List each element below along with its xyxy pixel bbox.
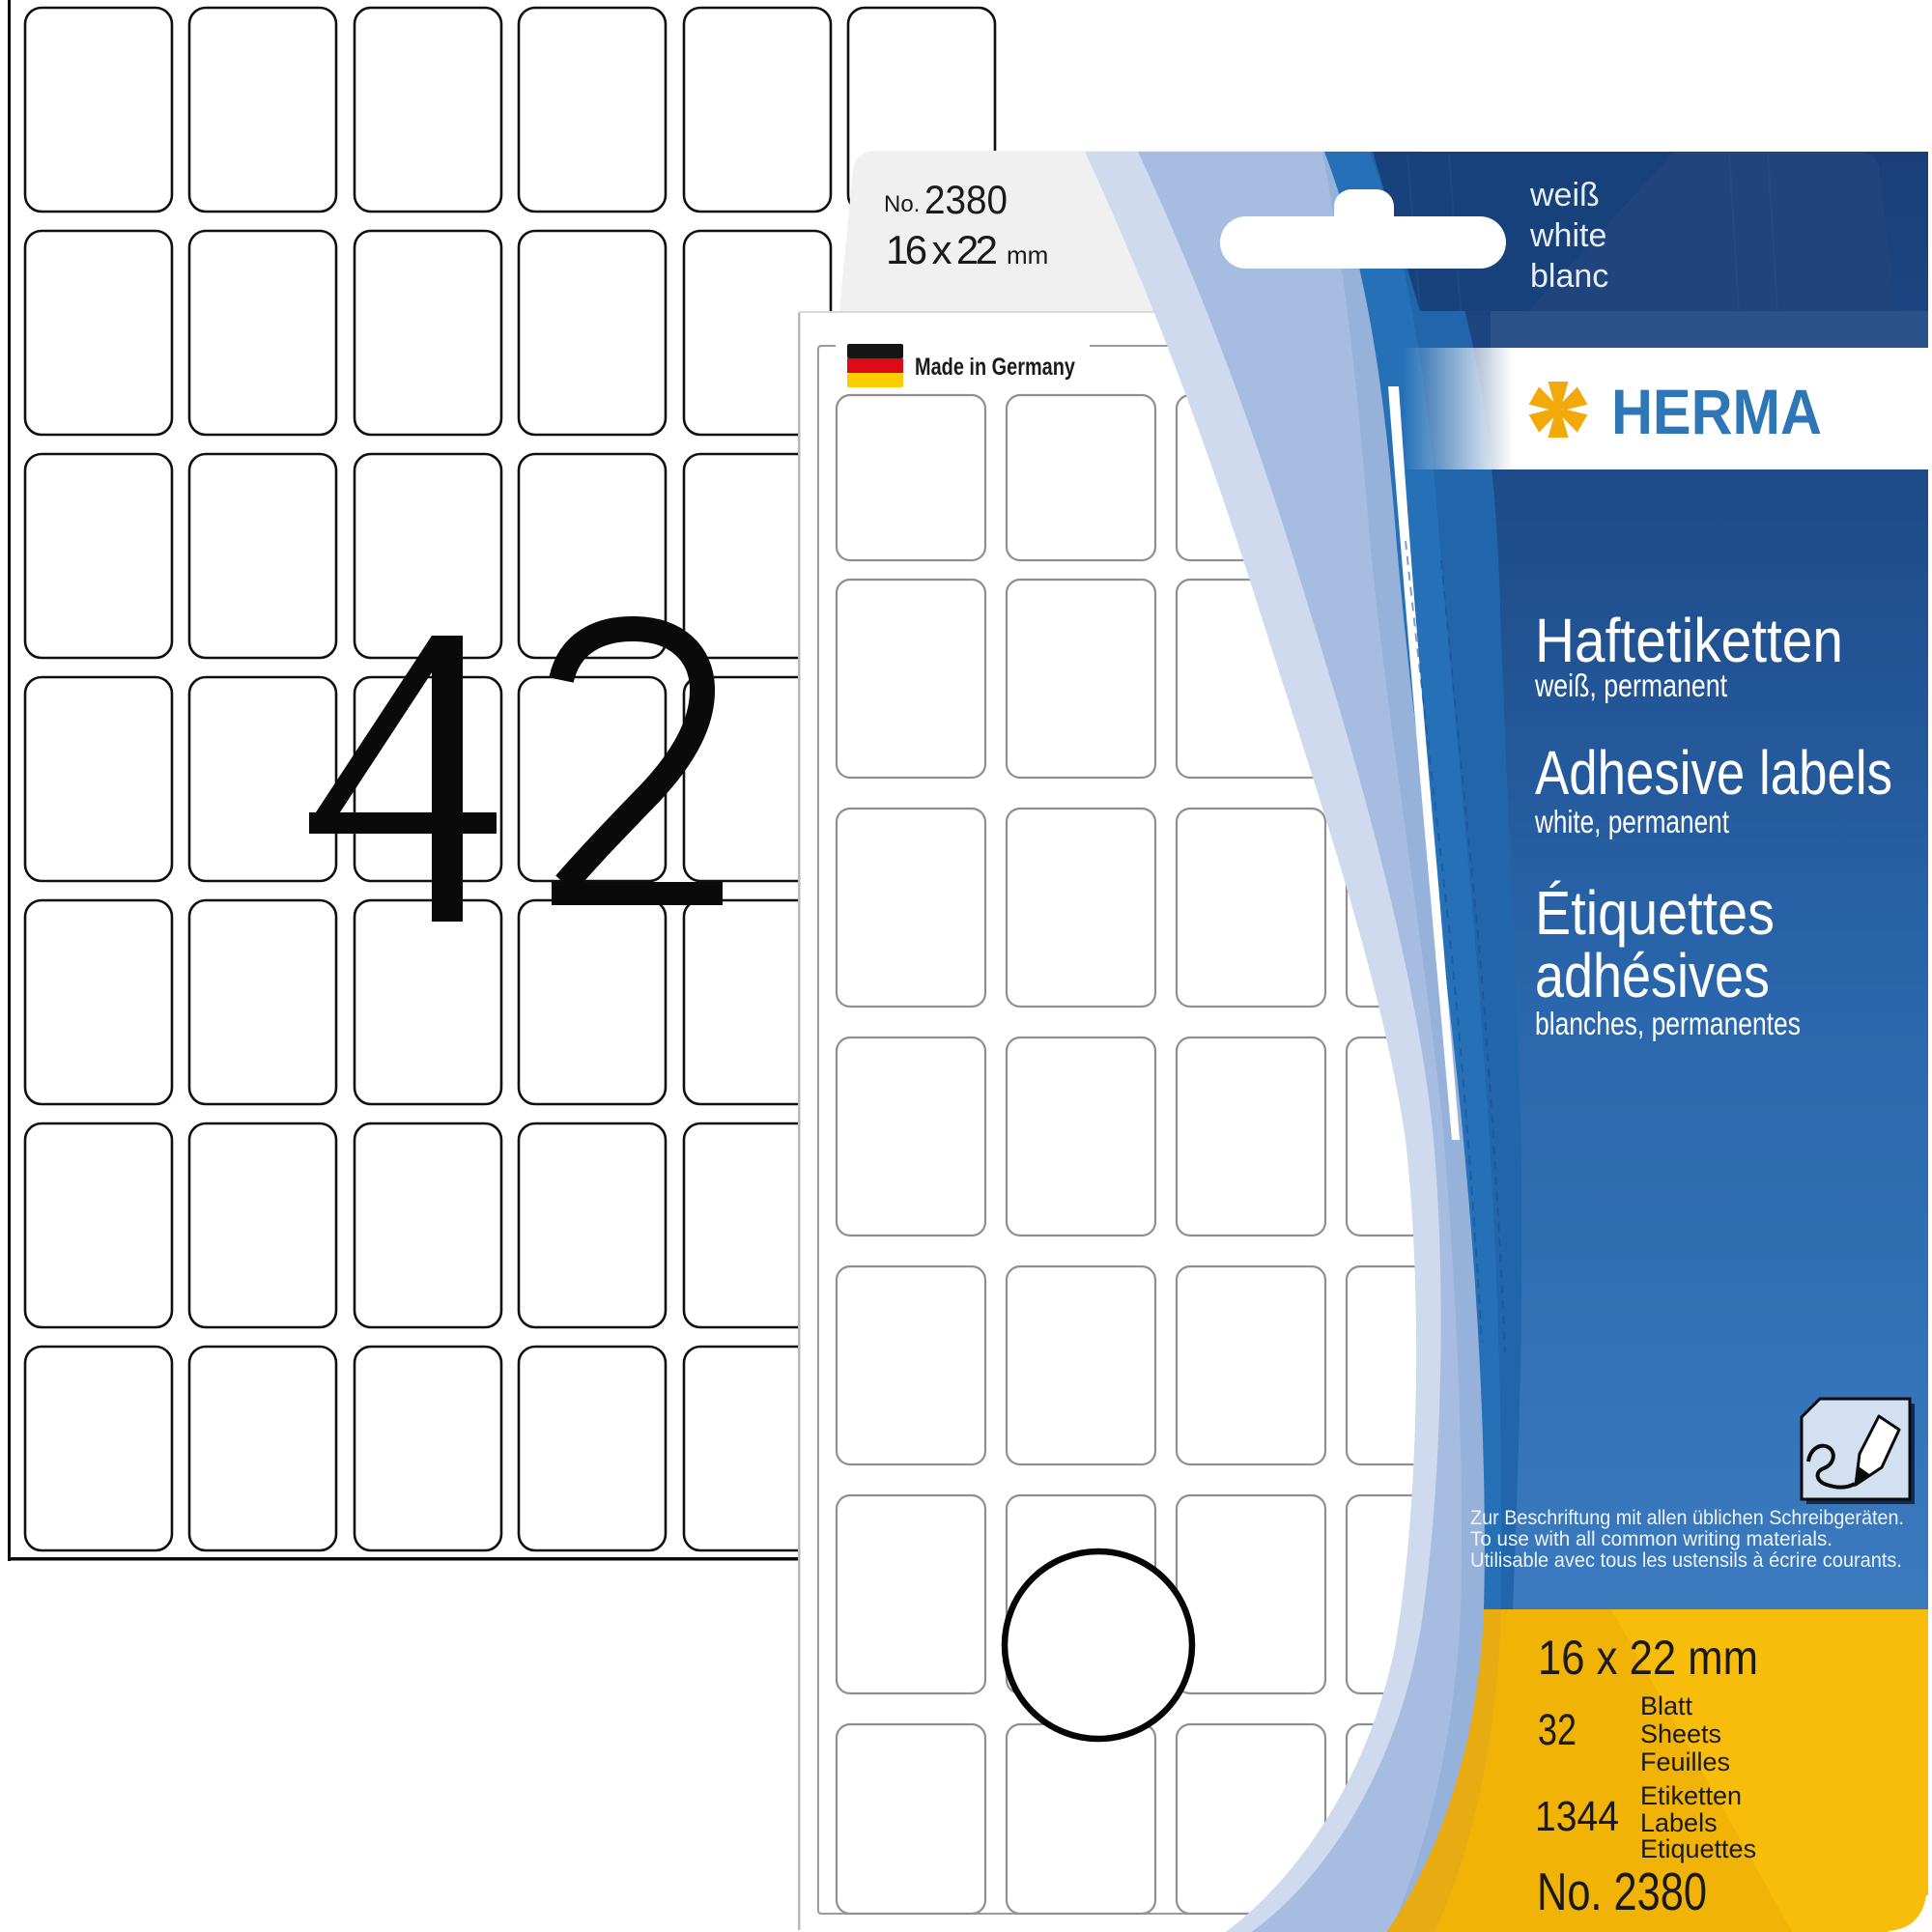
svg-text:weiß, permanent: weiß, permanent (1534, 668, 1727, 703)
svg-text:32: 32 (1538, 1705, 1577, 1754)
svg-text:2380: 2380 (924, 177, 1008, 222)
svg-text:HERMA: HERMA (1611, 376, 1822, 447)
svg-text:Étiquettes: Étiquettes (1535, 878, 1775, 948)
svg-text:Etiquettes: Etiquettes (1640, 1834, 1756, 1863)
svg-text:Etiketten: Etiketten (1640, 1781, 1742, 1810)
svg-text:Sheets: Sheets (1640, 1719, 1721, 1748)
svg-text:white, permanent: white, permanent (1534, 804, 1729, 839)
svg-text:1344: 1344 (1535, 1793, 1619, 1840)
svg-text:No.: No. (884, 191, 920, 217)
svg-text:blanches, permanentes: blanches, permanentes (1535, 1006, 1801, 1041)
svg-text:No. 2380: No. 2380 (1537, 1861, 1707, 1921)
svg-text:Labels: Labels (1640, 1808, 1718, 1837)
svg-text:16 x 22: 16 x 22 (886, 227, 998, 272)
svg-text:16 x 22 mm: 16 x 22 mm (1538, 1631, 1758, 1685)
svg-text:white: white (1529, 217, 1606, 254)
svg-text:Made in Germany: Made in Germany (915, 354, 1075, 381)
svg-text:Zur Beschriftung mit allen übl: Zur Beschriftung mit allen üblichen Schr… (1470, 1507, 1904, 1529)
svg-text:Blatt: Blatt (1640, 1691, 1693, 1720)
svg-text:Utilisable avec tous les usten: Utilisable avec tous les ustensils à écr… (1470, 1549, 1902, 1572)
svg-text:mm: mm (1007, 241, 1048, 270)
svg-text:adhésives: adhésives (1535, 941, 1770, 1010)
svg-text:Haftetiketten: Haftetiketten (1535, 606, 1843, 675)
svg-text:Adhesive labels: Adhesive labels (1535, 738, 1892, 808)
svg-text:weiß: weiß (1529, 177, 1600, 213)
svg-text:To use with all common writing: To use with all common writing materials… (1470, 1528, 1833, 1550)
svg-text:Feuilles: Feuilles (1640, 1747, 1730, 1776)
svg-text:blanc: blanc (1530, 258, 1608, 295)
